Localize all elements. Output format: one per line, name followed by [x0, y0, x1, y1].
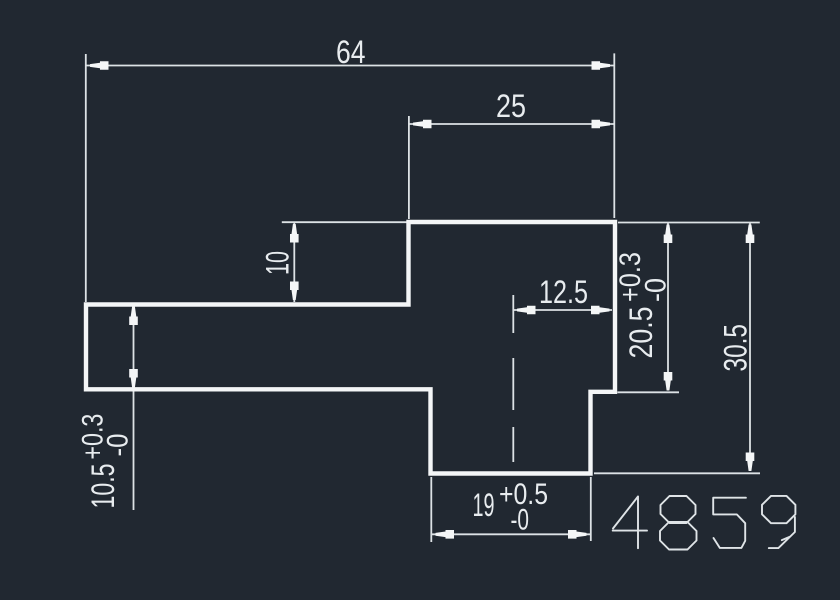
svg-text:30.5: 30.5	[718, 324, 754, 372]
svg-text:-0: -0	[102, 434, 135, 457]
svg-text:-0: -0	[640, 278, 673, 302]
svg-text:19: 19	[473, 487, 495, 523]
svg-text:20.5: 20.5	[623, 307, 659, 359]
svg-text:64: 64	[336, 34, 366, 70]
svg-text:12.5: 12.5	[539, 274, 588, 310]
svg-text:25: 25	[496, 88, 526, 124]
svg-text:10.5: 10.5	[85, 464, 121, 509]
svg-text:-0: -0	[511, 504, 530, 537]
svg-text:10: 10	[260, 251, 296, 275]
